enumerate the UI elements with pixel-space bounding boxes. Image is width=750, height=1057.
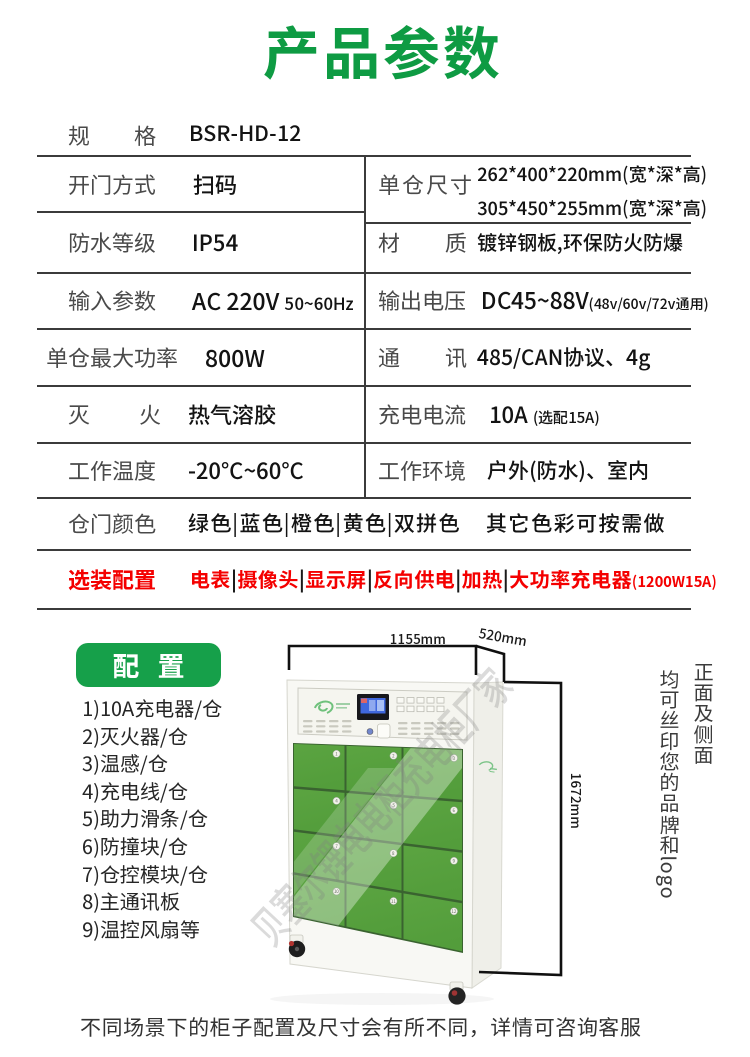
svg-text:11: 11 — [391, 899, 397, 905]
svg-text:12: 12 — [451, 909, 456, 915]
svg-text:9: 9 — [453, 859, 456, 865]
svg-text:520mm: 520mm — [477, 622, 528, 650]
svg-text:1672mm: 1672mm — [567, 773, 587, 829]
svg-text:6: 6 — [453, 808, 456, 814]
svg-text:1155mm: 1155mm — [390, 628, 446, 648]
svg-text:1: 1 — [335, 752, 338, 758]
svg-text:8: 8 — [392, 851, 395, 857]
